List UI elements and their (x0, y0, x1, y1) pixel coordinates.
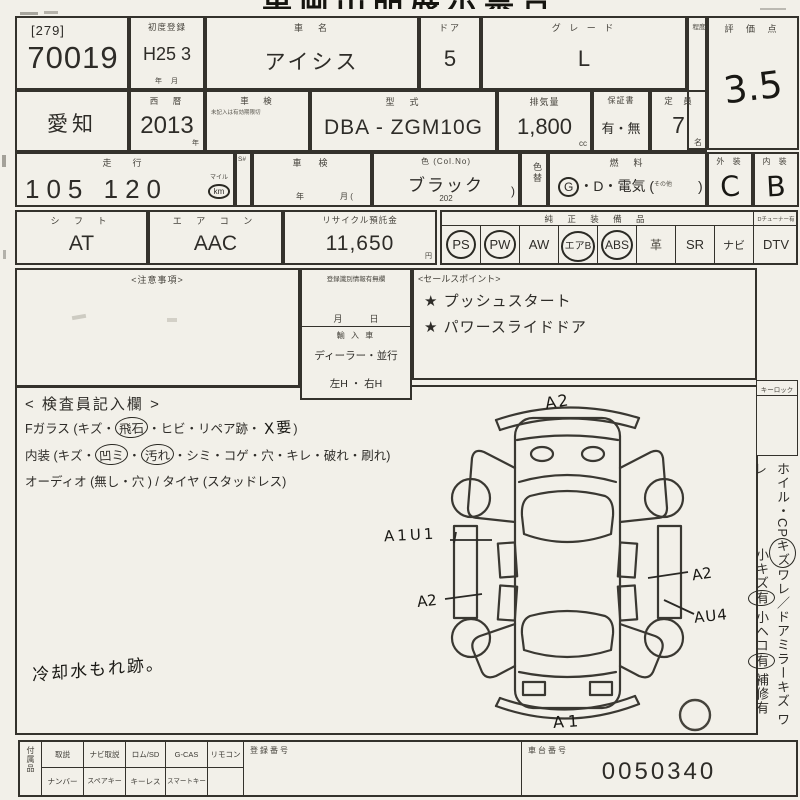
aircon-cell: エ ア コ ン AAC (148, 210, 283, 265)
right-vertical-notes: ホイル・CPキズワレ／ドアミラーキズ ワレ 小キズ有 小ヘコ有 補修有 (754, 462, 798, 738)
era-unit: 年 (192, 138, 199, 148)
damage-mark-left-upper: A1U1 (384, 525, 437, 546)
lot-bracket: [279] (31, 23, 65, 38)
shift-label: シ フ ト (17, 214, 146, 227)
displacement-unit: cc (579, 139, 587, 148)
accessories-label: 付属品 (25, 746, 36, 773)
warranty-label: 保証書 (594, 95, 648, 106)
equipment-dtv: DTV (763, 237, 789, 252)
equipment-cell-ps: PS (442, 226, 481, 264)
scan-mark (20, 12, 38, 15)
door-label: ドア (421, 21, 479, 34)
chassis-number-value: 0050340 (522, 758, 796, 786)
capacity-value: 7 (652, 112, 705, 139)
prefecture-value: 愛知 (17, 108, 127, 138)
car-name-cell: 車 名 アイシス (205, 16, 419, 90)
mileage-units: マイル km (203, 172, 235, 199)
interior-grade-cell: 内 装 B (753, 152, 799, 207)
sales-point-1: ★ プッシュスタート (424, 290, 572, 311)
shaken-date-year: 年 (296, 191, 304, 202)
exterior-grade-label: 外 装 (709, 156, 751, 167)
accessories-label-cell: 付属品 (20, 742, 42, 795)
equipment-aw: AW (529, 237, 549, 252)
equipment-leather: 革 (650, 238, 662, 252)
stamp-circle (680, 700, 710, 730)
damage-mark-rear: A1 (552, 711, 582, 732)
damage-mark-right-upper: A2 (691, 564, 713, 585)
accessory-empty-cell (208, 768, 244, 795)
car-name-label: 車 名 (207, 21, 417, 34)
narrow-label: 程度 (690, 21, 708, 31)
equipment-sr: SR (686, 237, 704, 252)
recycle-fee-label: リサイクル預託金 (285, 214, 435, 226)
exterior-grade-value: C (708, 168, 753, 205)
fuel-cell: 燃 料 G・D・電気 (その他) (548, 152, 707, 207)
accessory-remote: リモコン (208, 742, 244, 768)
equipment-cell-airbag: エアB (559, 226, 598, 264)
handle-options: 左H ・ 右H (302, 376, 410, 391)
registration-number-cell: 登録番号 (244, 742, 522, 795)
capacity-cell: 定 員 7 名 (650, 90, 707, 152)
keylock-box: キーロック (756, 380, 798, 456)
door-cell: ドア 5 (419, 16, 481, 90)
recycle-fee-cell: リサイクル預託金 11,650 円 (283, 210, 437, 265)
equipment-cell-aw: AW (520, 226, 559, 264)
score-label: 評 価 点 (709, 22, 797, 35)
scan-mark (3, 250, 6, 259)
registration-id-box: 登録識別情報有無欄 月 日 輸 入 車 ディーラー・並行 左H ・ 右H (300, 268, 412, 400)
auction-sheet: 車両出品展示票合 [279] 70019 初度登録 H25 3 年 月 車 名 … (0, 0, 800, 800)
color-value: ブラック (374, 171, 518, 196)
recycle-fee-value: 11,650 (285, 232, 435, 256)
color-code: 202 (374, 194, 518, 203)
damage-mark-front: A2 (544, 390, 572, 413)
model-code-cell: 型 式 DBA - ZGM10G (310, 90, 497, 152)
scan-mark (44, 11, 58, 14)
inspector-line-fglass: Fガラス (キズ・飛石・ヒビ・リペア跡・ X要) (25, 417, 297, 438)
shaken-date-month: 月 ( (340, 191, 353, 202)
accessory-spare-key: スペアキー (84, 768, 126, 795)
registration-id-date: 月 日 (302, 312, 410, 325)
keylock-label: キーロック (757, 381, 797, 396)
import-car-options: ディーラー・並行 (302, 348, 410, 363)
equipment-ps: PS (446, 230, 475, 259)
first-registration-label: 初度登録 (131, 21, 203, 33)
prefecture-cell: 愛知 (15, 90, 129, 152)
color-change-cell: 色替 (520, 152, 548, 207)
s-number-cell: S# (235, 152, 252, 207)
accessory-keyless: キーレス (126, 768, 166, 795)
interior-grade-value: B (754, 169, 798, 204)
mileage-value: 105 120 (25, 174, 168, 205)
caution-label: <注意事項> (17, 273, 298, 286)
score-value: 3.5 (707, 61, 800, 114)
accessory-gcas: G-CAS (166, 742, 208, 768)
color-change-label: 色替 (531, 162, 544, 184)
sales-point-2: ★ パワースライドドア (424, 316, 587, 337)
equipment-pw: PW (484, 230, 517, 259)
equipment-airbag: エアB (561, 231, 596, 262)
shaken-date-cell: 車 検 年 月 ( (252, 152, 372, 207)
grade-label: グ レ ー ド (483, 21, 685, 34)
mileage-label: 走 行 (17, 156, 233, 169)
grade-value: L (483, 46, 685, 72)
equipment-cell-abs: ABS (598, 226, 637, 264)
capacity-label: 定 員 (652, 95, 705, 107)
caution-box: <注意事項> (15, 268, 300, 388)
scratch-note: 小キズ有 小ヘコ有 補修有 (748, 548, 775, 715)
fuel-gasoline-mark: G (558, 177, 579, 197)
warranty-cell: 保証書 有・無 (592, 90, 650, 152)
inspector-line-audio-tire: オーディオ (無し・穴 ) / タイヤ (スタッドレス) (25, 471, 286, 490)
warranty-value: 有・無 (594, 118, 648, 137)
color-paren: ) (511, 184, 515, 198)
sales-point-box: <セールスポイント> ★ プッシュスタート ★ パワースライドドア (412, 268, 757, 380)
capacity-unit: 名 (694, 137, 702, 148)
equipment-cell-sr: SR (676, 226, 715, 264)
shift-value: AT (17, 232, 146, 256)
shaken-cell: 車 検 未記入は有効期限切 (205, 90, 310, 152)
car-name-value: アイシス (207, 46, 417, 76)
shaken-subnote: 未記入は有効期限切 (211, 108, 261, 116)
model-code-label: 型 式 (312, 95, 495, 108)
color-cell: 色 (Col.No) ブラック 202 ) (372, 152, 520, 207)
recycle-fee-unit: 円 (425, 251, 432, 261)
displacement-cell: 排気量 1,800 cc (497, 90, 592, 152)
bottom-strip: 付属品 取説 ナビ取説 ロム/SD G-CAS リモコン ナンバー スペアキー … (18, 740, 798, 797)
scan-mark (2, 155, 6, 167)
shaken-label: 車 検 (207, 95, 308, 107)
import-car-label: 輸 入 車 (302, 330, 410, 341)
cut-title-fragment: 車両出品展示票合 (262, 0, 562, 9)
mileage-cell: 走 行 105 120 マイル km (15, 152, 235, 207)
sales-point-label: <セールスポイント> (418, 272, 501, 285)
first-registration-value: H25 3 (131, 44, 203, 65)
equipment-cell-leather: 革 (637, 226, 676, 264)
damage-mark-right-lower: AU4 (693, 605, 728, 626)
accessory-navi-manual: ナビ取説 (84, 742, 126, 768)
score-cell: 評 価 点 3.5 (707, 16, 799, 150)
first-registration-units: 年 月 (131, 76, 203, 86)
s-number-label: S# (238, 156, 246, 163)
era-label: 西 暦 (131, 95, 203, 107)
damage-mark-left-lower: A2 (416, 591, 438, 611)
first-registration-cell: 初度登録 H25 3 年 月 (129, 16, 205, 90)
aircon-label: エ ア コ ン (150, 214, 281, 227)
accessory-number-plate: ナンバー (42, 768, 84, 795)
fuel-value: G・D・電気 (その他) (558, 176, 703, 197)
interior-grade-label: 内 装 (755, 156, 797, 167)
accessory-rom-sd: ロム/SD (126, 742, 166, 768)
lot-number: 70019 (21, 40, 125, 76)
displacement-value: 1,800 (499, 114, 590, 140)
aircon-value: AAC (150, 232, 281, 256)
accessory-manual: 取説 (42, 742, 84, 768)
shift-cell: シ フ ト AT (15, 210, 148, 265)
tuner-header: Dチューナー有 (754, 212, 798, 226)
handwritten-note: 冷却水もれ跡。 (32, 649, 165, 686)
equipment-cell-navi: ナビ (715, 226, 754, 264)
exterior-grade-cell: 外 装 C (707, 152, 753, 207)
accessory-smart-key: スマートキー (166, 768, 208, 795)
equipment-cell-dtv: DTV (754, 226, 798, 264)
shaken-date-label: 車 検 (254, 156, 370, 169)
equipment-header: 純 正 装 備 品 (442, 212, 754, 226)
era-cell: 西 暦 2013 年 (129, 90, 205, 152)
lot-cell: [279] 70019 (15, 16, 129, 90)
registration-id-label: 登録識別情報有無欄 (302, 273, 410, 283)
chassis-number-cell: 車台番号 0050340 (522, 742, 796, 795)
equipment-cell-pw: PW (481, 226, 520, 264)
displacement-label: 排気量 (499, 95, 590, 108)
equipment-panel: 純 正 装 備 品 Dチューナー有 PS PW AW エアB ABS 革 SR … (440, 210, 798, 265)
inspector-header: < 検査員記入欄 > (25, 393, 161, 414)
fuel-label: 燃 料 (550, 156, 705, 169)
scan-mark (760, 8, 786, 10)
chassis-number-label: 車台番号 (528, 745, 796, 756)
equipment-abs: ABS (601, 230, 633, 260)
era-value: 2013 (131, 112, 203, 140)
door-value: 5 (421, 46, 479, 72)
model-code-value: DBA - ZGM10G (312, 116, 495, 140)
grade-cell: グ レ ー ド L (481, 16, 687, 90)
car-diagram (420, 388, 765, 738)
equipment-navi: ナビ (723, 240, 745, 252)
color-label: 色 (Col.No) (374, 156, 518, 167)
inspector-line-interior: 内装 (キズ・凹ミ・汚れ・シミ・コゲ・穴・キレ・破れ・刷れ) (25, 444, 390, 465)
registration-number-label: 登録番号 (250, 745, 521, 756)
